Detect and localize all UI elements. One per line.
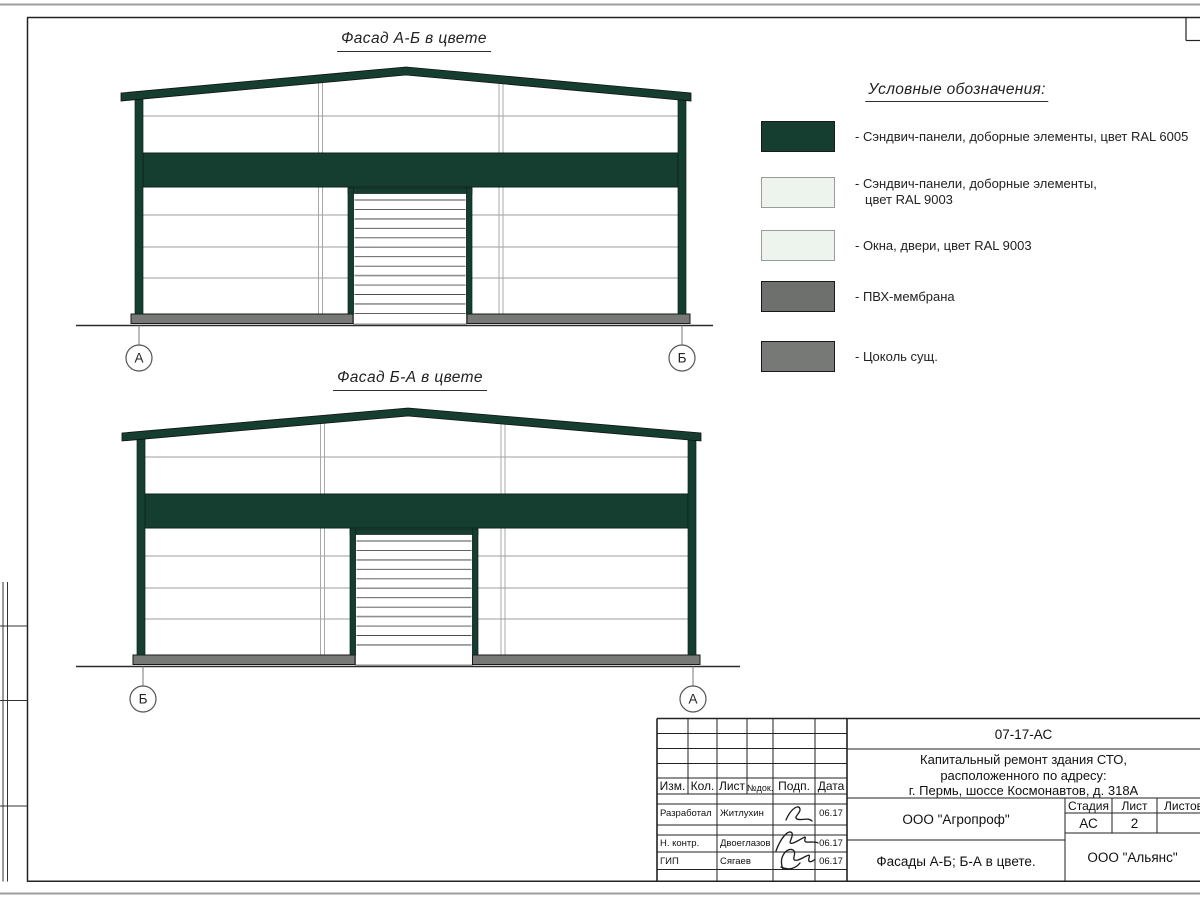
row-name: Житлухин [720, 809, 772, 820]
row-date: 06.17 [815, 839, 847, 850]
row-role: ГИП [660, 857, 717, 868]
legend-label: - Окна, двери, цвет RAL 9003 [855, 238, 1032, 254]
legend-swatch-ral6005 [761, 121, 835, 152]
facade-ab-axis-letter: А [134, 351, 143, 366]
legend-swatch-ral9003-panels [761, 177, 835, 208]
sheet-title: Фасады А-Б; Б-А в цвете. [847, 854, 1065, 870]
col-header-podp: Подп. [773, 780, 815, 794]
row-role: Разработал [660, 809, 717, 820]
legend-item-ral9003-panels: - Сэндвич-панели, доборные элементы,цвет… [761, 176, 1097, 208]
facade-ab-axis-letter: Б [678, 351, 687, 366]
sheet-number: 2 [1112, 816, 1157, 832]
legend-swatch-plinth [761, 341, 835, 372]
facade-ba-plinth [133, 655, 355, 665]
facade-ab-title: Фасад А-Б в цвете [337, 30, 491, 52]
legend-label: - Сэндвич-панели, доборные элементы,цвет… [855, 176, 1097, 208]
contractor-name: ООО "Альянс" [1065, 850, 1200, 866]
facade-ba-door-lintel [350, 529, 478, 535]
facade-ba-column-left [137, 437, 145, 655]
facade-ba-axis-letter: Б [139, 692, 148, 707]
legend-swatch-windows-doors [761, 230, 835, 261]
col-header-list: Лист [717, 780, 747, 794]
project-name: Капитальный ремонт здания СТО, расположе… [847, 752, 1200, 799]
row-date: 06.17 [815, 809, 847, 820]
facade-ab-plinth [467, 314, 690, 324]
facade-ab-green-band [143, 153, 678, 187]
facade-ba-roof [122, 408, 701, 441]
facade-ab-door-jamb [348, 188, 354, 314]
row-name: Двоеглазов [720, 839, 772, 850]
col-header-izm: Изм. [657, 780, 688, 794]
legend-heading: Условные обозначения: [865, 81, 1048, 102]
sheet-label: Лист [1112, 800, 1157, 814]
project-line-1: Капитальный ремонт здания СТО, [847, 752, 1200, 768]
col-header-data: Дата [815, 780, 847, 794]
legend-label: - ПВХ-мембрана [855, 289, 955, 305]
facade-ab-door-lintel [348, 188, 472, 194]
stage-label: Стадия [1065, 800, 1112, 814]
project-line-2: расположенного по адресу: [847, 768, 1200, 784]
stage-value: АС [1065, 816, 1112, 832]
facade-ba-column-right [688, 439, 696, 655]
org-name: ООО "Агропроф" [847, 812, 1065, 828]
facade-ba-green-band [145, 494, 688, 528]
legend-item-ral6005: - Сэндвич-панели, доборные элементы, цве… [761, 121, 1188, 152]
facade-ba-door-jamb [473, 529, 479, 655]
facade-ab-column-right [678, 98, 686, 314]
legend-item-pvc-membrane: - ПВХ-мембрана [761, 281, 955, 312]
project-line-3: г. Пермь, шоссе Космонавтов, д. 318А [847, 783, 1200, 799]
drawing-sheet: АББА Фасад А-Б в цвете Фасад Б-А в цвете… [0, 0, 1200, 900]
facade-ba-plinth [473, 655, 701, 665]
facade-ab-door-jamb [467, 188, 473, 314]
col-header-ndok: №док. [747, 783, 773, 793]
legend-label: - Сэндвич-панели, доборные элементы, цве… [855, 129, 1188, 145]
row-name: Сягаев [720, 857, 772, 868]
signature-zhitlukhin [786, 807, 812, 821]
row-date: 06.17 [815, 857, 847, 868]
doc-code: 07-17-АС [847, 727, 1200, 743]
facade-ab-roof [121, 67, 691, 101]
row-role: Н. контр. [660, 839, 717, 850]
facade-ba-axis-letter: А [688, 692, 697, 707]
facade-ab-plinth [131, 314, 353, 324]
legend-item-plinth: - Цоколь сущ. [761, 341, 938, 372]
facade-ab-column-left [135, 97, 143, 314]
legend-item-windows-doors: - Окна, двери, цвет RAL 9003 [761, 230, 1032, 261]
col-header-kol: Кол. [688, 780, 717, 794]
legend-swatch-pvc-membrane [761, 281, 835, 312]
legend-label: - Цоколь сущ. [855, 349, 938, 365]
facade-ba-title: Фасад Б-А в цвете [333, 369, 487, 391]
sheets-label: Листов [1157, 800, 1200, 814]
facade-ba-door-jamb [350, 529, 356, 655]
